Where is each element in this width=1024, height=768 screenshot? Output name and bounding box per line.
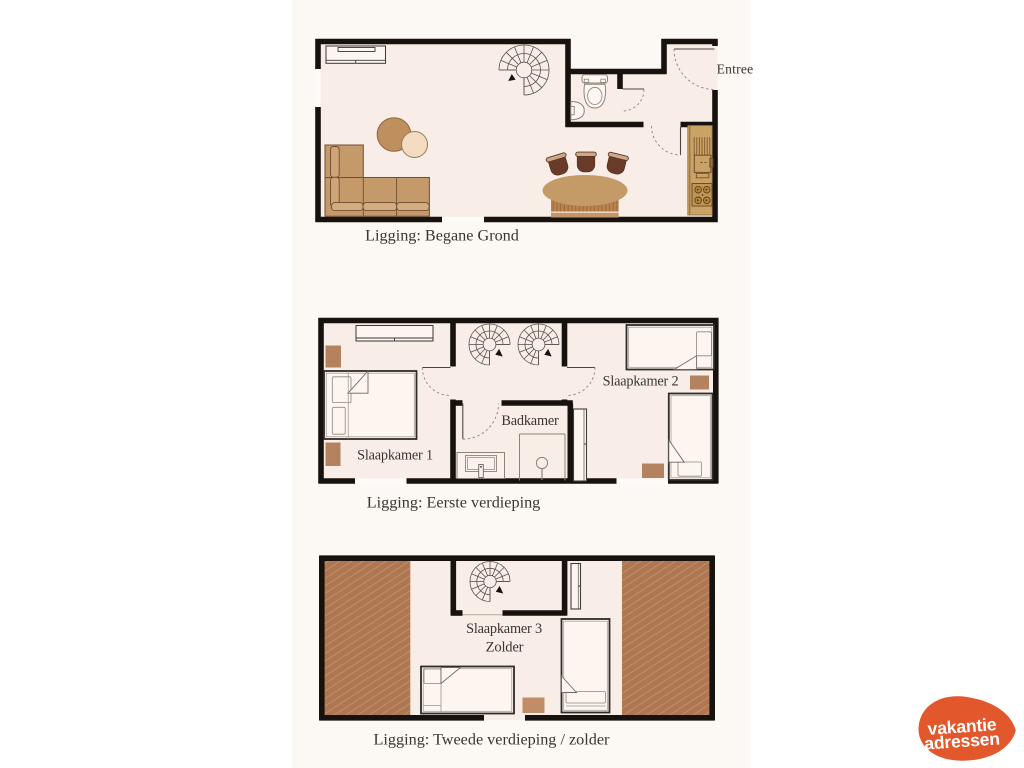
svg-text:Ligging: Begane Grond: Ligging: Begane Grond xyxy=(365,227,519,245)
svg-text:Slaapkamer 2: Slaapkamer 2 xyxy=(603,374,679,390)
svg-text:Slaapkamer 3: Slaapkamer 3 xyxy=(466,621,542,637)
svg-text:Zolder: Zolder xyxy=(486,640,524,656)
svg-text:Slaapkamer 1: Slaapkamer 1 xyxy=(357,448,433,464)
svg-text:Ligging: Tweede verdieping / z: Ligging: Tweede verdieping / zolder xyxy=(374,731,611,749)
svg-text:Entree: Entree xyxy=(717,62,754,77)
svg-text:Badkamer: Badkamer xyxy=(501,413,559,429)
svg-text:Ligging: Eerste verdieping: Ligging: Eerste verdieping xyxy=(367,494,541,512)
